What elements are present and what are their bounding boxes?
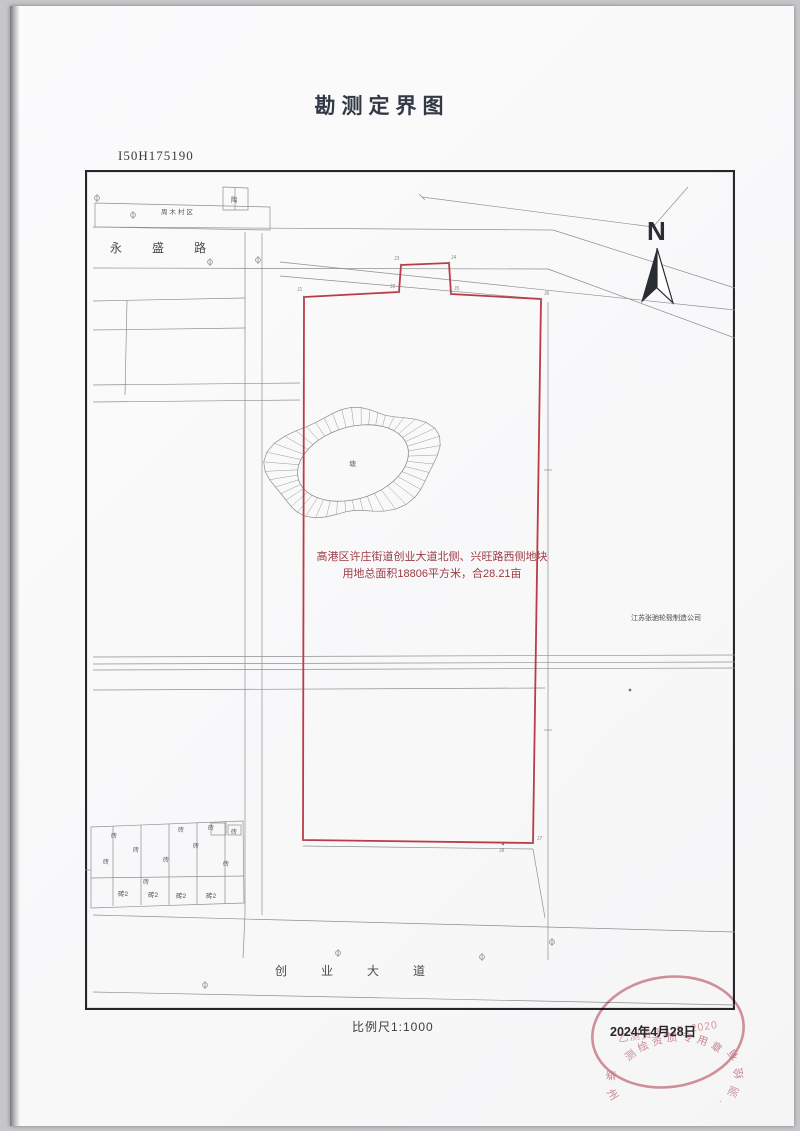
boundary-point-label: J7 — [537, 836, 543, 842]
north-label: N — [647, 216, 666, 246]
paper-sheet: 勘测定界图 I50H175190 — [10, 6, 794, 1126]
pond-label: 塘 — [349, 459, 356, 468]
boundary-point-label: J3 — [394, 256, 400, 262]
brick2-label: 砖2 — [118, 889, 129, 898]
road-label-chuangye: 创业大道 — [275, 964, 459, 978]
brick2-label: 砖2 — [148, 890, 159, 899]
page-title: 勘测定界图 — [10, 90, 754, 120]
map-frame: J1 J2 J3 J4 J5 J6 J7 J8 N 永盛路 创业大道 周木村区 … — [85, 170, 735, 1010]
sheet-code: I50H175190 — [118, 148, 194, 164]
map-speck — [629, 689, 632, 692]
pole-symbols — [95, 194, 555, 989]
brick-label: 砖 — [231, 828, 237, 836]
brick-label: 砖 — [208, 824, 214, 832]
company-label: 江苏张驰轮毂制造公司 — [631, 613, 701, 622]
boundary-point-label: J2 — [390, 284, 396, 290]
brick-label: 砖 — [193, 842, 199, 850]
boundary-point-label: J6 — [544, 291, 550, 297]
scale-label: 比例尺1:1000 — [352, 1018, 434, 1035]
village-label: 周木村区 — [161, 207, 195, 216]
brick2-label: 砖2 — [206, 891, 217, 900]
brick-label: 砖 — [133, 846, 139, 854]
survey-map: J1 J2 J3 J4 J5 J6 J7 J8 N 永盛路 创业大道 周木村区 … — [85, 170, 735, 1010]
brick2-labels: 砖2 砖2 砖2 砖2 — [118, 889, 217, 900]
parcel-note-line1: 高港区许庄街道创业大道北侧、兴旺路西侧地块 — [317, 549, 548, 563]
boundary-point-label: J5 — [454, 286, 460, 292]
boundary-point-label: J8 — [499, 848, 505, 854]
scanned-survey-document: { "page": { "title": "勘测定界图", "sheet_cod… — [0, 0, 800, 1131]
road-label-yongsheng: 永盛路 — [110, 240, 236, 255]
brick-label: 砖 — [111, 832, 117, 840]
boundary-point-label: J4 — [451, 255, 457, 261]
north-arrow-right-half — [657, 248, 673, 303]
parcel-note-line2: 用地总面积18806平方米，合28.21亩 — [342, 566, 521, 580]
brick-label: 砖 — [178, 826, 184, 834]
hut-label: 陶 — [231, 195, 238, 204]
map-neatline — [86, 171, 734, 1009]
scan-edge-shadow — [10, 6, 20, 1126]
brick-label: 砖 — [103, 858, 109, 866]
brick-label: 砖 — [223, 860, 229, 868]
north-arrow-left-half — [641, 248, 657, 303]
base-linework — [85, 187, 735, 1005]
survey-date: 2024年4月28日 — [610, 1021, 696, 1040]
brick-label: 砖 — [163, 856, 169, 864]
brick2-label: 砖2 — [176, 891, 187, 900]
boundary-point-label: J1 — [297, 287, 303, 293]
brick-label: 砖 — [143, 878, 149, 886]
